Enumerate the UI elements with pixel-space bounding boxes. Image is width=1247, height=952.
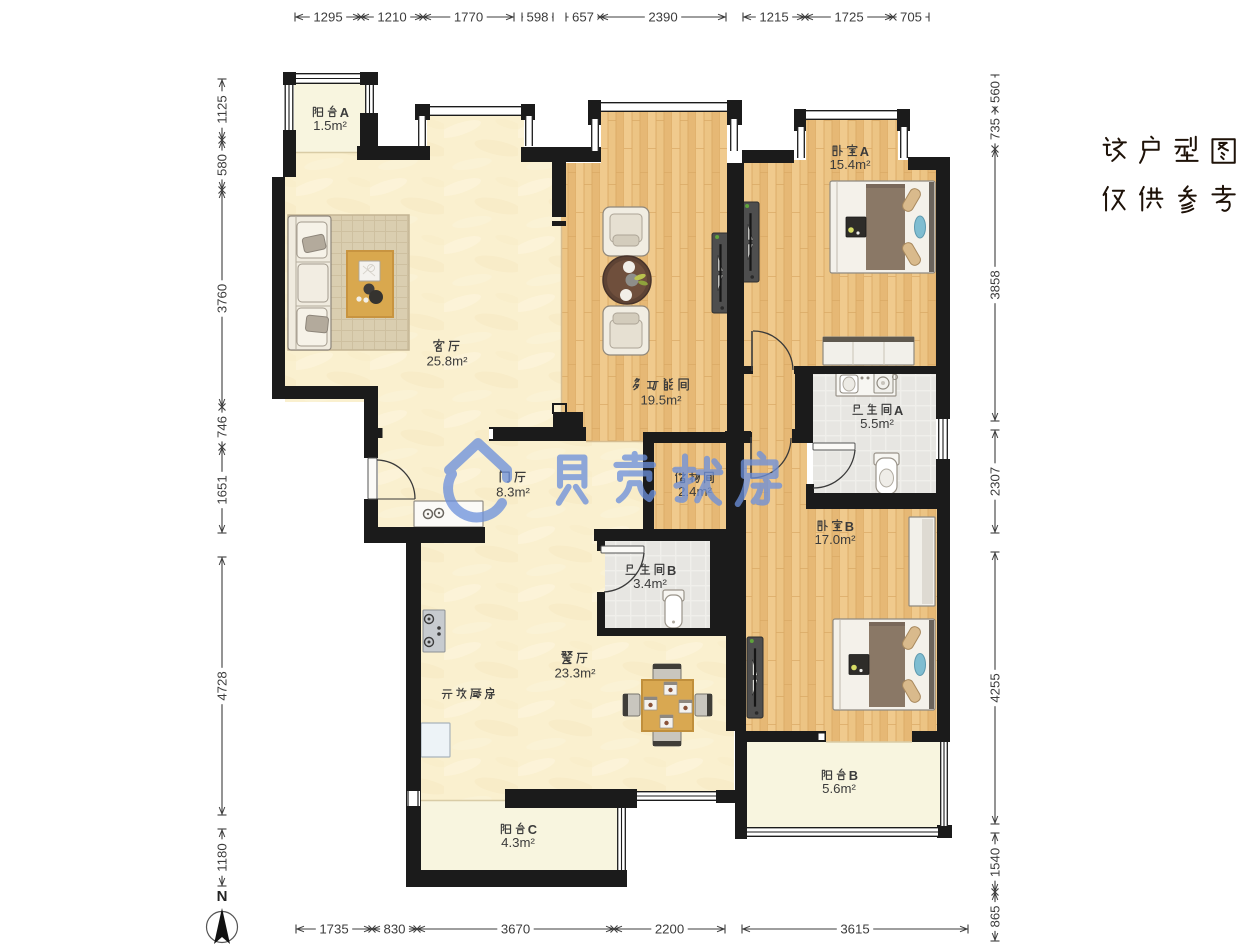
svg-text:657: 657	[572, 10, 594, 25]
svg-text:3.4m²: 3.4m²	[633, 576, 667, 591]
svg-text:4.3m²: 4.3m²	[501, 835, 535, 850]
svg-text:735: 735	[988, 118, 1003, 140]
svg-text:3858: 3858	[988, 270, 1003, 299]
svg-text:2307: 2307	[988, 467, 1003, 496]
svg-text:15.4m²: 15.4m²	[829, 157, 871, 172]
svg-text:5.6m²: 5.6m²	[822, 781, 856, 796]
svg-text:4255: 4255	[988, 673, 1003, 702]
svg-text:598: 598	[526, 10, 548, 25]
svg-text:3615: 3615	[840, 922, 869, 937]
svg-text:746: 746	[215, 416, 230, 438]
svg-text:580: 580	[215, 154, 230, 176]
svg-text:1651: 1651	[215, 475, 230, 504]
svg-text:3760: 3760	[215, 284, 230, 313]
svg-text:1.5m²: 1.5m²	[313, 118, 347, 133]
svg-text:1215: 1215	[759, 10, 788, 25]
svg-text:2200: 2200	[655, 922, 684, 937]
svg-text:1540: 1540	[988, 848, 1003, 877]
svg-text:1180: 1180	[215, 843, 230, 871]
svg-text:560: 560	[988, 81, 1003, 103]
svg-text:17.0m²: 17.0m²	[814, 532, 856, 547]
svg-text:705: 705	[900, 10, 922, 25]
svg-text:N: N	[217, 888, 228, 905]
svg-text:1725: 1725	[834, 10, 863, 25]
svg-text:25.8m²: 25.8m²	[426, 354, 468, 369]
svg-text:1210: 1210	[377, 10, 406, 25]
svg-text:23.3m²: 23.3m²	[554, 666, 596, 681]
svg-text:865: 865	[988, 905, 1003, 927]
svg-text:3670: 3670	[501, 922, 530, 937]
svg-text:1125: 1125	[215, 95, 230, 123]
svg-text:1295: 1295	[313, 10, 342, 25]
svg-text:4728: 4728	[215, 671, 230, 700]
svg-text:8.3m²: 8.3m²	[496, 485, 530, 500]
svg-text:5.5m²: 5.5m²	[860, 416, 894, 431]
svg-text:1735: 1735	[319, 922, 348, 937]
svg-text:1770: 1770	[454, 10, 483, 25]
svg-text:2390: 2390	[648, 10, 677, 25]
svg-text:19.5m²: 19.5m²	[640, 393, 682, 408]
svg-text:A: A	[894, 403, 903, 418]
svg-text:B: B	[667, 563, 676, 578]
svg-text:830: 830	[383, 922, 405, 937]
